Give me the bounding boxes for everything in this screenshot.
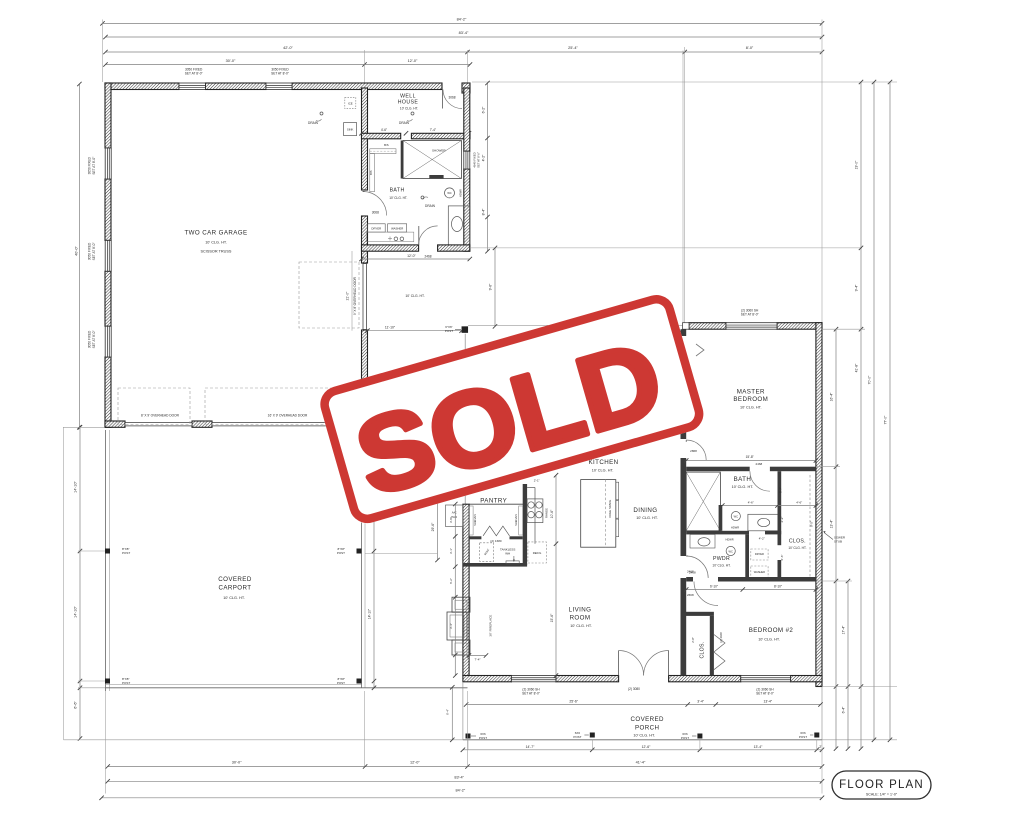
svg-text:POST: POST [681,736,689,740]
svg-text:SHELVES: SHELVES [514,514,518,526]
svg-text:SET AT 8'-6": SET AT 8'-6" [477,152,481,168]
svg-text:4'-6": 4'-6" [381,128,387,132]
svg-text:14'-10": 14'-10" [368,608,372,619]
svg-text:SET AT 8'-0": SET AT 8'-0" [741,313,759,317]
svg-text:41'-4": 41'-4" [636,761,646,765]
svg-text:HDWR: HDWR [459,189,463,197]
svg-text:10' CLG. HT.: 10' CLG. HT. [788,546,806,550]
svg-text:KNEE SPACE: KNEE SPACE [608,500,612,518]
svg-text:FLOOR PLAN: FLOOR PLAN [839,779,924,791]
svg-text:4'-6": 4'-6" [748,501,754,505]
svg-text:6'-4": 6'-4" [842,706,846,714]
svg-text:10' CLG. HT.: 10' CLG. HT. [712,564,730,568]
svg-text:10' CLG. HT.: 10' CLG. HT. [570,624,592,628]
svg-text:SET AT 8'-0": SET AT 8'-0" [271,72,289,76]
svg-text:3'-4": 3'-4" [449,623,453,629]
svg-text:2'-2": 2'-2" [780,517,784,523]
svg-text:10' CLG. HT.: 10' CLG. HT. [405,294,424,298]
svg-text:8' X 9' OVERHEAD DOOR: 8' X 9' OVERHEAD DOOR [141,414,180,418]
svg-text:7'-4": 7'-4" [475,658,481,662]
svg-text:2'-8": 2'-8" [691,637,695,643]
svg-text:15'-8": 15'-8" [746,455,754,459]
svg-text:3068: 3068 [448,96,455,100]
svg-text:HDWR: HDWR [731,526,739,530]
svg-text:15'-6": 15'-6" [550,613,554,622]
svg-text:10' CLG. HT.: 10' CLG. HT. [732,485,754,489]
svg-text:6'-2": 6'-2" [449,578,453,584]
svg-text:13'-4": 13'-4" [763,699,772,703]
svg-text:POST: POST [122,681,130,685]
svg-text:5'-7": 5'-7" [779,487,783,493]
svg-text:42'-0": 42'-0" [283,46,293,50]
svg-text:CLOS.: CLOS. [789,539,806,545]
svg-text:POST: POST [337,681,345,685]
svg-text:POST: POST [122,551,130,555]
svg-text:14'-10": 14'-10" [74,480,78,492]
svg-text:SCALE: 1/4" = 1'-0": SCALE: 1/4" = 1'-0" [866,793,898,797]
svg-text:TWO CAR GARAGE: TWO CAR GARAGE [184,230,247,237]
svg-text:84'-2": 84'-2" [457,17,467,21]
svg-text:DRYER: DRYER [371,226,381,230]
svg-text:40'-0": 40'-0" [75,246,79,256]
svg-text:3050 FIXED: 3050 FIXED [88,330,92,348]
svg-text:83'-4": 83'-4" [454,776,464,780]
svg-text:COVERED: COVERED [218,576,252,583]
svg-text:12'-0": 12'-0" [407,254,416,258]
svg-text:SCISSOR TRUSS: SCISSOR TRUSS [201,250,232,254]
svg-text:STUB: STUB [834,540,842,544]
svg-text:10' CLG. HT.: 10' CLG. HT. [740,406,762,410]
svg-text:POST: POST [445,329,453,333]
svg-text:2468: 2468 [424,255,431,259]
svg-text:WC: WC [734,514,738,518]
svg-text:SET AT 8'-0": SET AT 8'-0" [92,242,96,260]
svg-text:9'-6": 9'-6" [489,283,493,291]
svg-text:29'-6": 29'-6" [431,522,435,531]
svg-text:11'-10": 11'-10" [385,326,396,330]
svg-text:RANGE: RANGE [544,508,548,518]
svg-text:DRAIN: DRAIN [308,121,319,125]
svg-text:6'-2": 6'-2" [482,106,486,114]
svg-text:30'-0": 30'-0" [232,761,242,765]
svg-text:70'-0": 70'-0" [868,375,872,384]
svg-text:DRAIN: DRAIN [399,121,410,125]
svg-text:4'-2": 4'-2" [482,154,486,162]
svg-text:HOUSE: HOUSE [398,100,419,106]
svg-text:POST: POST [337,551,345,555]
svg-text:PANTRY: PANTRY [480,498,507,505]
svg-text:BEDROOM #2: BEDROOM #2 [749,627,794,634]
svg-text:SET AT 8'-0": SET AT 8'-0" [756,692,774,696]
svg-text:KITCHEN: KITCHEN [589,459,619,466]
svg-text:LIVING: LIVING [569,607,592,614]
svg-text:3068: 3068 [372,211,379,215]
svg-text:POST: POST [573,735,581,739]
svg-text:6'-6": 6'-6" [74,701,78,709]
svg-text:13'-4": 13'-4" [754,745,763,749]
svg-text:SET AT 8'-0": SET AT 8'-0" [522,692,540,696]
svg-text:2668: 2668 [687,593,694,597]
svg-text:BATH: BATH [390,188,405,194]
svg-text:6'-6": 6'-6" [780,555,784,561]
svg-text:77'-0": 77'-0" [884,415,888,424]
svg-text:14'-7": 14'-7" [526,745,535,749]
svg-text:REF/G: REF/G [533,551,542,555]
svg-text:7'-4": 7'-4" [430,128,436,132]
svg-text:WASHER: WASHER [391,226,403,230]
svg-text:SHELVES: SHELVES [473,514,477,526]
svg-text:CARPORT: CARPORT [219,585,252,592]
svg-text:17'-4": 17'-4" [842,625,846,634]
svg-text:10' CLG. HT.: 10' CLG. HT. [223,596,245,600]
svg-text:W/AC: W/AC [483,548,490,556]
svg-text:8'-0": 8'-0" [746,46,754,50]
svg-text:DRAIN: DRAIN [425,204,436,208]
svg-text:WC: WC [729,549,733,553]
svg-text:10' CLG. HT.: 10' CLG. HT. [389,196,407,200]
svg-text:83'-4": 83'-4" [459,31,469,35]
svg-text:3'-1": 3'-1" [449,548,453,554]
svg-text:6'-10": 6'-10" [710,585,718,589]
svg-text:WASHER: WASHER [754,570,765,574]
svg-text:2868: 2868 [690,449,697,453]
svg-text:14'-10": 14'-10" [74,605,78,617]
svg-text:B/S: B/S [369,170,373,175]
svg-text:2468: 2468 [756,462,763,466]
svg-text:9'-4": 9'-4" [855,284,859,292]
svg-text:9'-5": 9'-5" [810,521,814,527]
svg-text:2468: 2468 [687,570,694,574]
svg-text:PWDR: PWDR [713,556,730,562]
svg-text:POST: POST [799,735,807,739]
svg-text:DINING: DINING [633,507,657,514]
svg-text:3050 FIXED: 3050 FIXED [88,242,92,260]
svg-text:CLOS.: CLOS. [700,641,706,658]
svg-text:WH: WH [505,552,510,556]
svg-text:2'-1": 2'-1" [534,478,540,482]
svg-text:16'-4": 16'-4" [830,392,834,401]
svg-text:(2) 3080: (2) 3080 [628,687,640,691]
svg-text:19'-0": 19'-0" [855,160,859,169]
svg-text:10' CLG. HT.: 10' CLG. HT. [633,733,655,737]
svg-text:12'-0": 12'-0" [408,59,418,63]
svg-text:HDWR: HDWR [726,538,734,542]
svg-text:3'-8": 3'-8" [449,517,453,523]
svg-text:4'-2": 4'-2" [759,537,765,541]
svg-text:SHOWER: SHOWER [432,149,446,153]
svg-text:SET AT 8'-0": SET AT 8'-0" [92,157,96,175]
svg-text:8'-10": 8'-10" [774,585,782,589]
svg-text:ICE: ICE [348,102,353,106]
svg-text:B/S: B/S [384,143,389,147]
svg-text:SET AT 8'-0": SET AT 8'-0" [92,330,96,348]
svg-text:(2) 3068: (2) 3068 [719,632,723,643]
svg-text:41'-8": 41'-8" [855,363,859,372]
svg-text:(2) 1680: (2) 1680 [490,539,502,543]
svg-text:30'-0": 30'-0" [226,59,236,63]
svg-text:PORCH: PORCH [635,725,659,732]
svg-text:6'-4": 6'-4" [446,709,450,715]
svg-text:16' X 9' OVERHEAD DOOR: 16' X 9' OVERHEAD DOOR [268,414,308,418]
svg-text:2': 2' [819,745,822,749]
svg-text:12'-0": 12'-0" [410,761,420,765]
svg-text:36" FIREPLACE: 36" FIREPLACE [489,615,493,637]
svg-text:10' CLG. HT.: 10' CLG. HT. [205,241,227,245]
svg-text:BEDROOM: BEDROOM [733,396,768,403]
svg-text:DRYER: DRYER [755,552,764,556]
svg-text:21'-0": 21'-0" [346,291,350,300]
svg-text:10' CLG. HT.: 10' CLG. HT. [400,107,418,111]
svg-text:13'-4": 13'-4" [830,519,834,528]
svg-text:BATH: BATH [734,476,752,483]
svg-text:25'-6": 25'-6" [569,699,578,703]
svg-text:9' X 8' OVERHEAD DOOR: 9' X 8' OVERHEAD DOOR [353,276,357,315]
svg-text:SET AT 8'-0": SET AT 8'-0" [185,72,203,76]
svg-text:3'-4": 3'-4" [697,699,705,703]
svg-text:A/C: A/C [452,511,458,515]
svg-text:8'-4": 8'-4" [482,208,486,216]
svg-text:ROOM: ROOM [570,615,591,622]
svg-text:SINK: SINK [347,128,354,132]
svg-text:MASTER: MASTER [737,389,765,396]
svg-text:4'-6": 4'-6" [796,501,802,505]
svg-text:10' CLG. HT.: 10' CLG. HT. [592,469,614,473]
svg-text:25'-4": 25'-4" [568,46,578,50]
svg-text:10' CLG. HT.: 10' CLG. HT. [636,516,658,520]
svg-text:POST: POST [479,736,487,740]
svg-text:12'-6": 12'-6" [642,745,651,749]
svg-text:WC: WC [447,191,451,195]
svg-text:10'-6": 10'-6" [550,509,554,518]
svg-text:10' CLG. HT.: 10' CLG. HT. [758,638,780,642]
svg-text:COVERED: COVERED [630,716,664,723]
svg-text:84'-2": 84'-2" [456,789,466,793]
svg-text:3050 FIXED: 3050 FIXED [88,156,92,174]
